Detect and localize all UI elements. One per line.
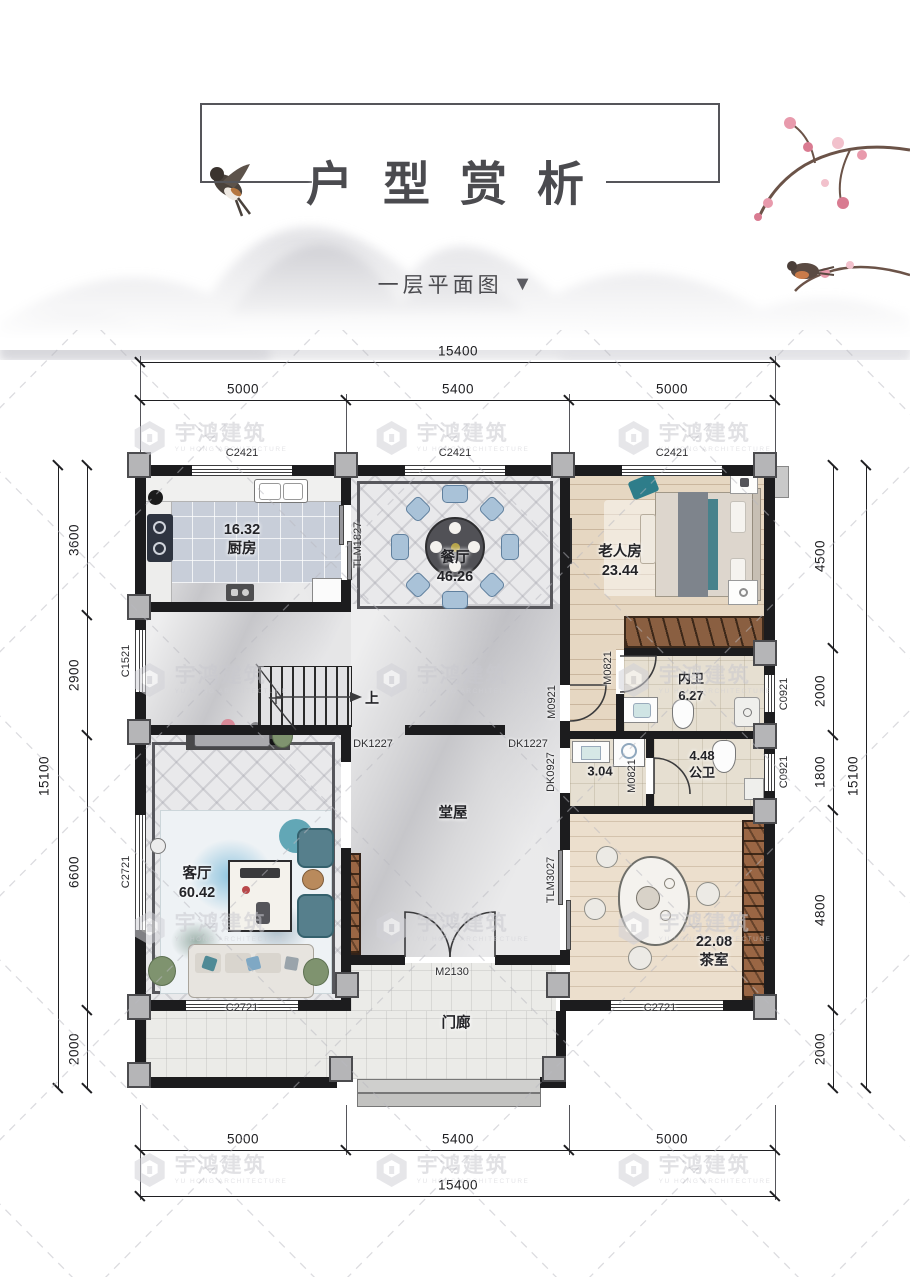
wall-segment (341, 725, 351, 762)
dim-line (140, 1150, 776, 1151)
watermark-cn-text: 宇鸿建筑 (659, 1155, 772, 1176)
extension-line (346, 1105, 347, 1155)
room-area: 46.26 (437, 568, 473, 587)
subtitle: 一层平面图 ▼ (378, 269, 533, 299)
wall-segment (560, 731, 775, 739)
pilaster (753, 640, 777, 666)
coffee-table (228, 860, 292, 932)
plum-blossom-art (730, 95, 910, 315)
wall-segment (135, 725, 351, 735)
opening-label-c2421: C2421 (226, 447, 258, 459)
room-label-dining: 餐厅 46.26 (437, 549, 473, 587)
lamp (740, 478, 749, 487)
dim-top-seg: 5400 (442, 382, 474, 397)
opening-label-c2421: C2421 (656, 447, 688, 459)
opening-label-c0921: C0921 (778, 756, 790, 788)
watermark-logo: 宇鸿建筑YU HONG ARCHITECTURE (133, 420, 288, 456)
kitchen-sink (254, 479, 308, 503)
title-box-right (718, 103, 720, 183)
room-name: 厨房 (224, 540, 260, 559)
wall-segment (560, 793, 570, 850)
title-box-left (200, 103, 202, 183)
pilaster (127, 994, 151, 1020)
burner (153, 521, 166, 534)
tea-room-screen (742, 820, 766, 1000)
room-name: 茶室 (696, 952, 732, 971)
room-area: 23.44 (598, 562, 642, 581)
sliding-door-leaf (558, 850, 563, 905)
side-table (302, 869, 324, 890)
extension-line (775, 356, 776, 452)
wall-segment (135, 692, 146, 815)
hexagon-logo-icon (375, 1152, 409, 1188)
sink-basin (259, 483, 281, 500)
entry-steps (357, 1079, 541, 1093)
dim-top-total: 15400 (438, 344, 478, 359)
drain (743, 708, 752, 717)
dim-top-seg: 5000 (656, 382, 688, 397)
wall-segment (560, 465, 570, 685)
toilet (712, 740, 736, 773)
armchair (297, 894, 334, 938)
hexagon-logo-icon (617, 1152, 651, 1188)
tea-stool (628, 946, 652, 970)
extension-line (140, 356, 141, 452)
room-name: 门廊 (442, 1015, 471, 1034)
wall-segment (560, 1000, 611, 1011)
wall-segment (405, 725, 505, 735)
basin (633, 703, 651, 718)
wall-segment (495, 955, 560, 965)
pilaster (753, 994, 777, 1020)
dim-line (87, 465, 88, 1088)
pilaster (753, 723, 777, 749)
appliance-dot (231, 589, 238, 596)
table-deco (256, 902, 270, 924)
dim-left-seg: 3600 (67, 524, 82, 556)
washer-drum (621, 743, 637, 759)
dim-bot-seg: 5400 (442, 1132, 474, 1147)
window-stair-left (135, 630, 146, 692)
window-kitchen-top (192, 465, 292, 476)
bird-art (192, 148, 262, 223)
wall-segment (646, 739, 654, 758)
opening-label-c2721-bottom: C2721 (226, 1002, 258, 1014)
room-label-living: 客厅 60.42 (179, 865, 215, 903)
opening-label-dk1227: DK1227 (508, 738, 548, 750)
wall-segment (298, 1000, 351, 1011)
hexagon-logo-icon (617, 420, 651, 456)
watermark-en-text: YU HONG ARCHITECTURE (659, 1179, 772, 1186)
room-area: 6.27 (678, 688, 704, 705)
pilaster (334, 452, 358, 478)
dim-right-seg: 1800 (813, 756, 828, 788)
room-label-public-bath: 4.48 公卫 (689, 748, 715, 782)
triangle-down-icon: ▼ (513, 273, 533, 296)
window-living-left (135, 815, 146, 930)
room-area: 4.48 (689, 748, 715, 765)
room-area: 22.08 (696, 933, 732, 952)
pilaster (753, 452, 777, 478)
wall-segment (135, 602, 351, 612)
watermark-cn-text: 宇鸿建筑 (175, 423, 288, 444)
watermark-en-text: YU HONG ARCHITECTURE (417, 447, 530, 454)
watermark-cn-text: 宇鸿建筑 (659, 423, 772, 444)
room-label-elder: 老人房 23.44 (598, 543, 642, 581)
room-name: 堂屋 (439, 805, 468, 824)
room-label-porch: 门廊 (442, 1015, 471, 1034)
dim-left-total: 15100 (37, 756, 52, 796)
nightstand (728, 580, 758, 605)
dim-right-seg: 4800 (813, 894, 828, 926)
hexagon-logo-icon (133, 420, 167, 456)
pilaster (551, 452, 575, 478)
burner (153, 542, 166, 555)
pillow (730, 501, 746, 533)
dim-line (833, 465, 834, 1088)
opening-label-m0821: M0821 (602, 651, 614, 685)
hall-floor (351, 604, 560, 957)
wall-segment (135, 1077, 337, 1088)
dining-chair (501, 534, 519, 560)
lamp (739, 588, 748, 597)
armchair (297, 828, 334, 868)
window-dining-top (405, 465, 505, 476)
window-bath-right (764, 754, 775, 791)
watermark-cn-text: 宇鸿建筑 (175, 1155, 288, 1176)
tea-table (618, 856, 690, 946)
floor-lamp (150, 838, 166, 854)
pilaster (127, 452, 151, 478)
pilaster (542, 1056, 566, 1082)
floor-drain (744, 778, 764, 800)
extension-line (569, 1105, 570, 1155)
pilaster (753, 798, 777, 824)
subtitle-text: 一层平面图 (378, 269, 503, 299)
room-name: 老人房 (598, 543, 642, 562)
watermark-cn-text: 宇鸿建筑 (417, 1155, 530, 1176)
watermark-en-text: YU HONG ARCHITECTURE (175, 1179, 288, 1186)
dim-top-seg: 5000 (227, 382, 259, 397)
opening-label-tlm3027: TLM3027 (545, 857, 557, 903)
room-area: 60.42 (179, 884, 215, 903)
hexagon-logo-icon (375, 420, 409, 456)
room-label-hall: 堂屋 (439, 805, 468, 824)
opening-label-c2421: C2421 (439, 447, 471, 459)
stair-up-label: 上 (365, 689, 379, 707)
window-elder-top (622, 465, 722, 476)
kitchen-small-appliance (226, 584, 254, 601)
dim-left-seg: 6600 (67, 856, 82, 888)
wall-segment (560, 806, 775, 814)
dim-bot-seg: 5000 (656, 1132, 688, 1147)
sofa (188, 944, 314, 998)
wall-segment (560, 950, 570, 965)
opening-label-m0821: M0821 (626, 759, 638, 793)
dim-line (58, 465, 59, 1088)
tea-stool (584, 898, 606, 920)
dim-right-seg: 4500 (813, 540, 828, 572)
title-box-bottom-left (200, 181, 312, 183)
dim-right-total: 15100 (846, 756, 861, 796)
dim-bot-total: 15400 (438, 1178, 478, 1193)
tea-cup (660, 910, 671, 921)
room-label-kitchen: 16.32 厨房 (224, 521, 260, 559)
room-name: 内卫 (678, 671, 704, 688)
opening-label-dk1227: DK1227 (353, 738, 393, 750)
table-tray (240, 868, 280, 878)
watermark-cn-text: 宇鸿建筑 (417, 423, 530, 444)
elder-bed-blanket (678, 492, 708, 597)
bath-vanity (622, 697, 658, 723)
dining-chair (442, 591, 468, 609)
pilaster (127, 594, 151, 620)
dining-chair (391, 534, 409, 560)
sofa-pillow (284, 956, 299, 971)
room-area: 16.32 (224, 521, 260, 540)
basin (581, 746, 601, 760)
dining-chair (442, 485, 468, 503)
fridge (312, 578, 342, 604)
pilaster (335, 972, 359, 998)
wash-sink (572, 741, 610, 763)
title-box-top (200, 103, 720, 105)
pilaster (546, 972, 570, 998)
watermark-logo: 宇鸿建筑YU HONG ARCHITECTURE (133, 1152, 288, 1188)
room-label-tea: 22.08 茶室 (696, 933, 732, 971)
pilaster (127, 719, 151, 745)
wardrobe (624, 616, 764, 648)
opening-label-m2130: M2130 (435, 966, 469, 978)
dim-right-seg: 2000 (813, 1033, 828, 1065)
dim-line (140, 400, 776, 401)
window-bath-right (764, 675, 775, 712)
opening-label-c0921: C0921 (778, 678, 790, 710)
kitchen-stove (147, 514, 173, 562)
title-box-bottom-right (606, 181, 720, 183)
dim-left-seg: 2900 (67, 659, 82, 691)
floor-plan-page: 户型赏析 一层平面图 ▼ (0, 0, 910, 1277)
room-area: 3.04 (587, 764, 612, 781)
table-deco-red (242, 886, 250, 894)
room-name: 餐厅 (437, 549, 473, 568)
sink-basin (283, 483, 303, 500)
dim-right-seg: 2000 (813, 675, 828, 707)
dim-left-seg: 2000 (67, 1033, 82, 1065)
pilaster (329, 1056, 353, 1082)
hexagon-logo-icon (133, 1152, 167, 1188)
tea-cup (664, 878, 675, 889)
room-label-inner-bath: 内卫 6.27 (678, 671, 704, 705)
staircase (258, 666, 352, 727)
watermark-logo: 宇鸿建筑YU HONG ARCHITECTURE (617, 420, 772, 456)
dim-line (866, 465, 867, 1088)
elder-bed-runner (708, 499, 718, 590)
opening-label-m0921: M0921 (546, 685, 558, 719)
opening-label-tlm1827: TLM1827 (352, 522, 364, 568)
watermark-logo: 宇鸿建筑YU HONG ARCHITECTURE (617, 1152, 772, 1188)
tea-kettle (636, 886, 660, 910)
page-title: 户型赏析 (306, 146, 614, 215)
pilaster (127, 1062, 151, 1088)
plant (148, 956, 176, 986)
wall-segment (351, 955, 405, 965)
room-name: 客厅 (179, 865, 215, 884)
plant (303, 958, 329, 986)
room-name: 公卫 (689, 765, 715, 782)
room-label-wash: 3.04 (587, 764, 612, 781)
sliding-door-leaf (339, 505, 344, 545)
opening-label-c2721-bottom: C2721 (644, 1002, 676, 1014)
opening-label-c1521: C1521 (120, 645, 132, 677)
place-setting (449, 522, 461, 534)
dim-line (140, 1196, 776, 1197)
appliance-dot (242, 589, 249, 596)
sliding-door-leaf (566, 900, 571, 950)
dim-line (140, 362, 776, 363)
dim-bot-seg: 5000 (227, 1132, 259, 1147)
opening-label-c2721-left: C2721 (120, 856, 132, 888)
elder-bench (640, 514, 656, 564)
tea-stool (696, 882, 720, 906)
tea-stool (596, 846, 618, 868)
opening-label-dk0927: DK0927 (545, 752, 557, 792)
kitchen-wall-clock (148, 490, 163, 505)
kitchen-counter-top (146, 476, 341, 502)
entry-steps (357, 1093, 541, 1107)
